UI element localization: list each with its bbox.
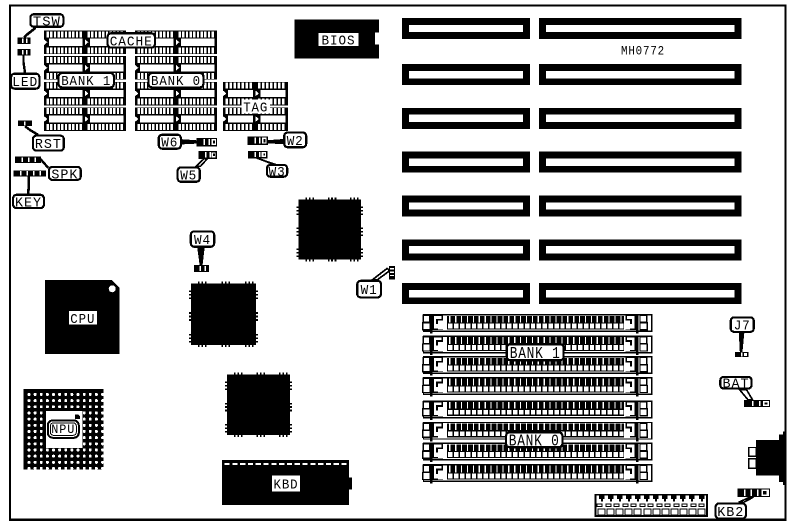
svg-text:SPK: SPK <box>51 167 78 183</box>
svg-text:NPU: NPU <box>51 422 75 437</box>
svg-text:W5: W5 <box>180 169 197 185</box>
svg-text:BANK 0: BANK 0 <box>509 432 560 451</box>
svg-text:KB2: KB2 <box>717 505 744 521</box>
svg-text:W3: W3 <box>269 165 286 181</box>
svg-text:W2: W2 <box>287 134 304 150</box>
svg-text:MH0772: MH0772 <box>621 44 665 59</box>
svg-text:W4: W4 <box>194 233 211 249</box>
svg-text:BIOS: BIOS <box>322 33 356 49</box>
svg-text:BANK 0: BANK 0 <box>151 74 201 90</box>
svg-text:W1: W1 <box>361 283 378 299</box>
svg-text:BANK 1: BANK 1 <box>510 344 561 363</box>
svg-text:KBD: KBD <box>274 477 299 493</box>
svg-text:CPU: CPU <box>70 312 95 328</box>
svg-text:W6: W6 <box>161 136 178 152</box>
svg-text:J7: J7 <box>734 319 751 335</box>
svg-text:RST: RST <box>35 137 62 153</box>
svg-text:KEY: KEY <box>15 195 42 211</box>
svg-text:TAG: TAG <box>243 101 268 117</box>
svg-text:CACHE: CACHE <box>110 34 153 50</box>
svg-text:TSW: TSW <box>33 15 61 31</box>
svg-text:LED: LED <box>12 75 38 91</box>
svg-text:BANK 1: BANK 1 <box>61 74 111 90</box>
